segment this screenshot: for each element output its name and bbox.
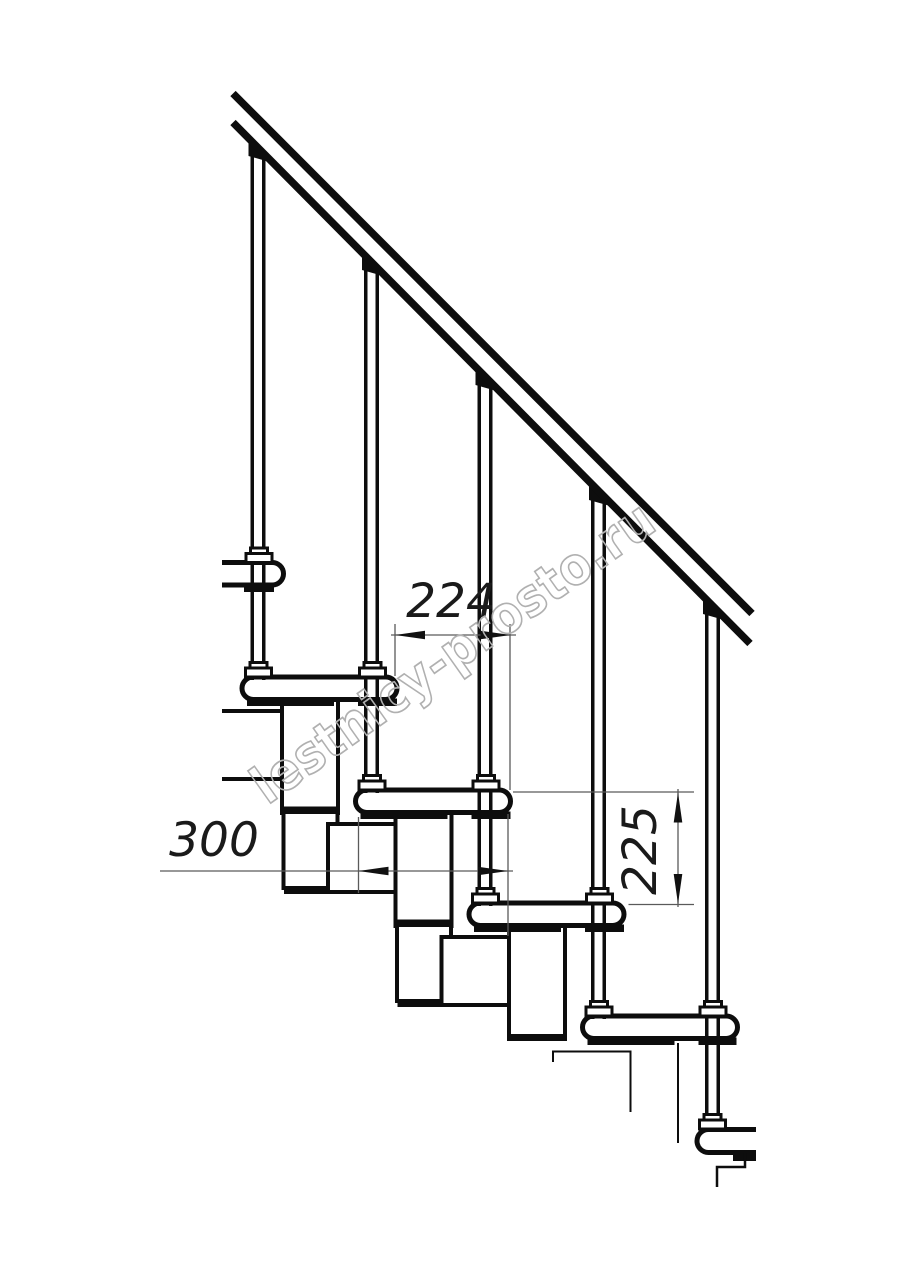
staircase-technical-drawing: 224 300 225 lestnicy-prosto.ru	[0, 0, 914, 1280]
tread-3	[469, 903, 624, 926]
baluster-5	[703, 600, 723, 1132]
dimension-value-step-rise: 225	[613, 805, 668, 895]
tread-5	[697, 1130, 756, 1153]
stringer-module-3	[509, 926, 565, 1039]
dimension-value-tread-depth: 300	[169, 813, 259, 868]
baluster-1	[249, 142, 269, 680]
tread-4	[583, 1016, 738, 1039]
drawing-canvas: 224 300 225 lestnicy-prosto.ru	[0, 0, 914, 1280]
tread-2	[356, 790, 511, 813]
